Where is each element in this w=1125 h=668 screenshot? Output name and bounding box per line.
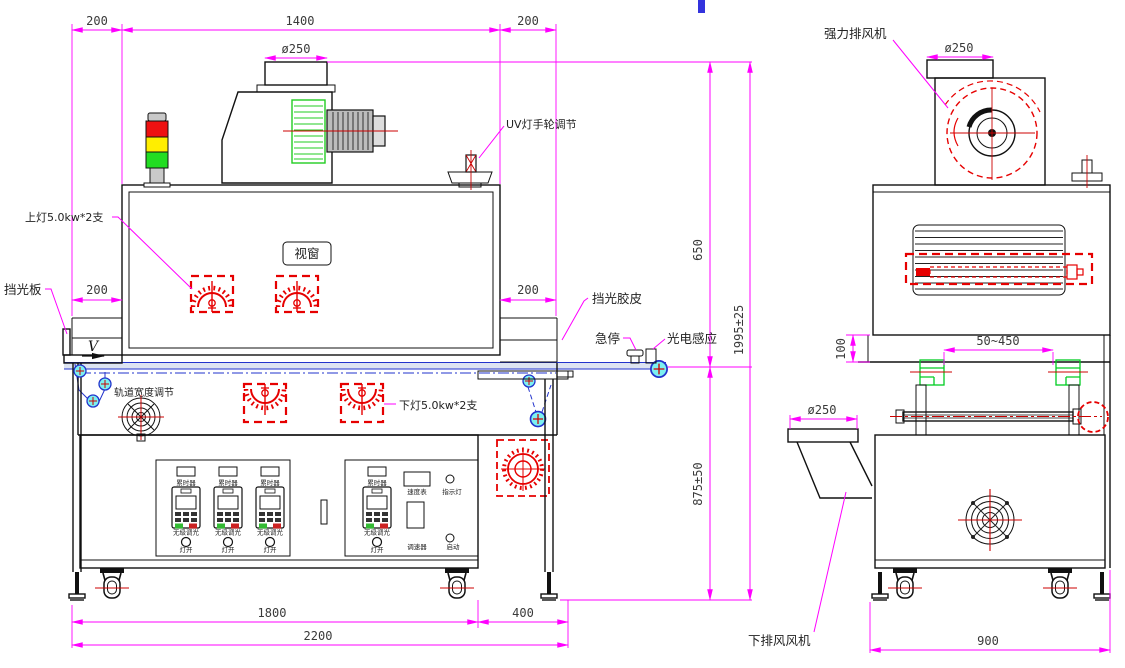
lamp-on-label: 灯开 (264, 545, 278, 554)
cooling-grille (958, 489, 1022, 551)
right-panel-items: 速度表 指示灯 调速器 启动 (404, 472, 462, 551)
vfd-column-3: 累时器 无级调光 灯开 (256, 467, 284, 554)
dim-text: 50~450 (976, 334, 1019, 348)
dim-right-tunnel-200: 200 (500, 283, 556, 300)
indicator-lamp (446, 475, 454, 483)
dim-text: 1800 (258, 606, 287, 620)
label-text: 轨道宽度调节 (114, 386, 174, 399)
view-window-box: 视窗 (283, 242, 331, 265)
side-view (788, 60, 1110, 600)
dim-left-tunnel-200: 200 (72, 283, 122, 300)
foot-front-right (541, 572, 557, 600)
lamp-on-label: 灯开 (371, 545, 385, 554)
belt-direction-mark: V (82, 339, 104, 356)
cad-drawing-uv-curing-machine: 视窗 (0, 0, 1125, 668)
label-text: 急停 (595, 331, 620, 346)
speed-meter-label: 速度表 (407, 487, 427, 496)
lamp-chamber (78, 363, 557, 435)
label-text: 下灯5.0kw*2支 (399, 399, 477, 412)
speed-controller-box (407, 502, 424, 528)
dim-text: 1400 (286, 14, 315, 28)
side-fan-housing (935, 78, 1045, 185)
door-handle (321, 500, 327, 524)
dim-top-right-200: 200 (500, 14, 556, 30)
belt-direction-letter: V (88, 339, 100, 355)
belt-roller-5 (531, 412, 546, 427)
oven-body (72, 185, 557, 362)
label-top-exhaust-fan: 强力排风机 (824, 26, 948, 108)
top-duct (257, 62, 335, 92)
caster-front-right (440, 568, 474, 598)
label-text: 挡光板 (4, 282, 42, 297)
belt-roller-3 (87, 395, 99, 407)
lead-screw (890, 385, 1108, 435)
dim-text: 200 (517, 14, 539, 28)
dim-top-duct-dia: ø250 (265, 42, 327, 58)
indicator-label: 指示灯 (442, 487, 462, 496)
dim-side-duct-dia: ø250 (927, 41, 993, 57)
label-photo-sensor: 光电感应 (653, 331, 717, 349)
emergency-stop-button (627, 350, 643, 363)
label-uv-handwheel: UV灯手轮调节 (479, 117, 577, 158)
caster-side-left (888, 568, 922, 598)
blue-marker (698, 0, 705, 13)
dim-text: ø250 (945, 41, 974, 55)
rail-bracket-right (1048, 360, 1088, 385)
timer-label: 累时器 (260, 478, 280, 487)
annotations: 上灯5.0kw*2支 挡光板 UV灯手轮调节 挡光胶皮 急停 光电感应 轨道宽度… (4, 26, 948, 648)
side-top-duct (927, 60, 993, 78)
dimming-label: 无级调光 (257, 528, 284, 537)
label-lower-lamp: 下灯5.0kw*2支 (384, 399, 477, 412)
label-upper-lamp: 上灯5.0kw*2支 (25, 211, 192, 289)
dim-650: 650 (691, 62, 710, 367)
dim-text: 200 (517, 283, 539, 297)
dim-1995: 1995±25 (732, 62, 750, 600)
dimensions: 200 1400 200 ø250 200 200 650 (72, 14, 1110, 653)
dim-text: 900 (977, 634, 999, 648)
lamp-on-label: 灯开 (180, 545, 194, 554)
signal-tower (144, 113, 170, 187)
dim-2200: 2200 (72, 629, 568, 645)
view-window-label: 视窗 (294, 246, 319, 261)
caster-side-right (1043, 568, 1077, 598)
label-track-width: 轨道宽度调节 (114, 386, 174, 399)
foot-side-right (1094, 572, 1110, 600)
upper-lamp-1 (191, 276, 233, 312)
dim-text: 200 (86, 14, 108, 28)
dim-text: 100 (834, 338, 848, 360)
label-emergency-stop: 急停 (595, 331, 636, 350)
outfeed-table (478, 371, 573, 572)
front-view: 视窗 (63, 62, 667, 600)
dimming-label: 无级调光 (173, 528, 200, 537)
speed-controller-label: 调速器 (407, 542, 427, 551)
vfd-column-4: 累时器 无级调光 灯开 (363, 467, 391, 554)
track-width-handwheel (118, 395, 164, 441)
dim-text: 1995±25 (732, 305, 746, 356)
dimming-label: 无级调光 (364, 528, 391, 537)
photo-sensor (646, 349, 656, 363)
label-shield-plate: 挡光板 (4, 282, 67, 334)
foot-front-left (69, 572, 85, 600)
dim-text: 2200 (304, 629, 333, 643)
dim-875: 875±50 (691, 367, 710, 600)
start-button (446, 534, 454, 542)
belt-roller-2 (99, 378, 111, 390)
label-text: 强力排风机 (824, 26, 887, 41)
rail-bracket-left (910, 360, 952, 385)
vfd-column-2: 累时器 无级调光 灯开 (214, 467, 242, 554)
side-uv-lamp (906, 254, 1092, 284)
label-text: 上灯5.0kw*2支 (25, 211, 103, 224)
dim-top-left-200: 200 (72, 14, 122, 30)
lower-lamp-1 (244, 384, 286, 422)
timer-label: 累时器 (218, 478, 238, 487)
dim-text: ø250 (282, 42, 311, 56)
label-bottom-exhaust-fan: 下排风风机 (748, 492, 846, 648)
upper-lamp-2 (276, 276, 318, 312)
speed-meter-display (404, 472, 430, 486)
foot-side-left (872, 572, 888, 600)
dim-100: 100 (834, 335, 853, 362)
belt-roller-4 (523, 375, 535, 387)
side-uv-handwheel (1072, 155, 1102, 188)
belt-roller-1 (74, 365, 86, 377)
dim-text: 650 (691, 239, 705, 261)
dim-text: 400 (512, 606, 534, 620)
dim-1800: 1800 (72, 606, 478, 622)
dim-top-1400: 1400 (122, 14, 500, 30)
vfd-column-1: 累时器 无级调光 灯开 (172, 467, 200, 554)
drawing-canvas: 视窗 (0, 0, 1125, 668)
dim-400: 400 (478, 606, 568, 622)
lamp-on-label: 灯开 (222, 545, 236, 554)
uv-handwheel (448, 150, 492, 190)
timer-label: 累时器 (367, 478, 387, 487)
timer-label: 累时器 (176, 478, 196, 487)
start-label: 启动 (447, 542, 461, 551)
dim-900: 900 (870, 634, 1110, 650)
label-text: 光电感应 (667, 331, 717, 346)
dim-text: ø250 (808, 403, 837, 417)
lower-lamp-2 (341, 384, 383, 422)
caster-front-left (95, 568, 129, 598)
dim-text: 200 (86, 283, 108, 297)
dim-50-450: 50~450 (944, 334, 1053, 350)
lower-exhaust-duct (788, 429, 872, 498)
label-text: 下排风风机 (748, 633, 811, 648)
label-text: UV灯手轮调节 (506, 117, 577, 131)
label-text: 挡光胶皮 (592, 291, 642, 306)
dim-text: 875±50 (691, 462, 705, 505)
dim-lower-duct-dia: ø250 (790, 403, 857, 419)
dimming-label: 无级调光 (215, 528, 242, 537)
drive-motor (497, 440, 549, 496)
